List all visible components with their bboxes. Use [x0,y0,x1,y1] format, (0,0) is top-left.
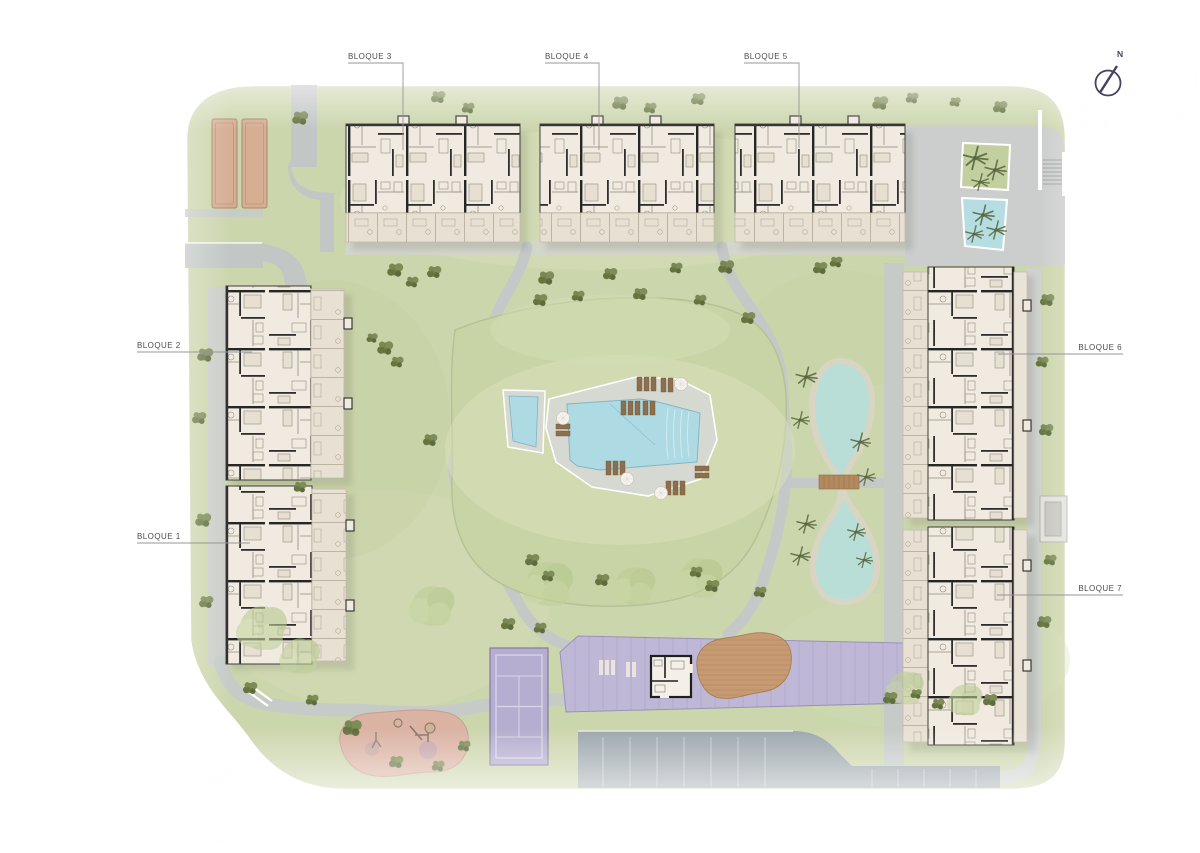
label-bloque-6: BLOQUE 6 [1078,343,1122,352]
site-plan-page: BLOQUE 3 BLOQUE 4 BLOQUE 5 BLOQUE 2 BLOQ… [0,0,1200,853]
clubhouse-plan [651,656,693,698]
kids-pool [509,396,538,447]
building-bloque-4 [540,116,714,242]
label-bloque-2: BLOQUE 2 [137,341,181,350]
label-bloque-5: BLOQUE 5 [744,52,788,61]
label-bloque-3: BLOQUE 3 [348,52,392,61]
label-bloque-7: BLOQUE 7 [1078,584,1122,593]
building-bloque-5 [735,116,905,242]
pond-bridge [819,475,859,489]
label-bloque-1: BLOQUE 1 [137,532,181,541]
site-plan-canvas [0,0,1200,853]
building-bloque-2 [226,286,352,480]
building-bloque-6 [903,267,1031,520]
compass-north-label: N [1117,49,1123,59]
label-bloque-4: BLOQUE 4 [545,52,589,61]
building-bloque-3 [346,116,520,242]
